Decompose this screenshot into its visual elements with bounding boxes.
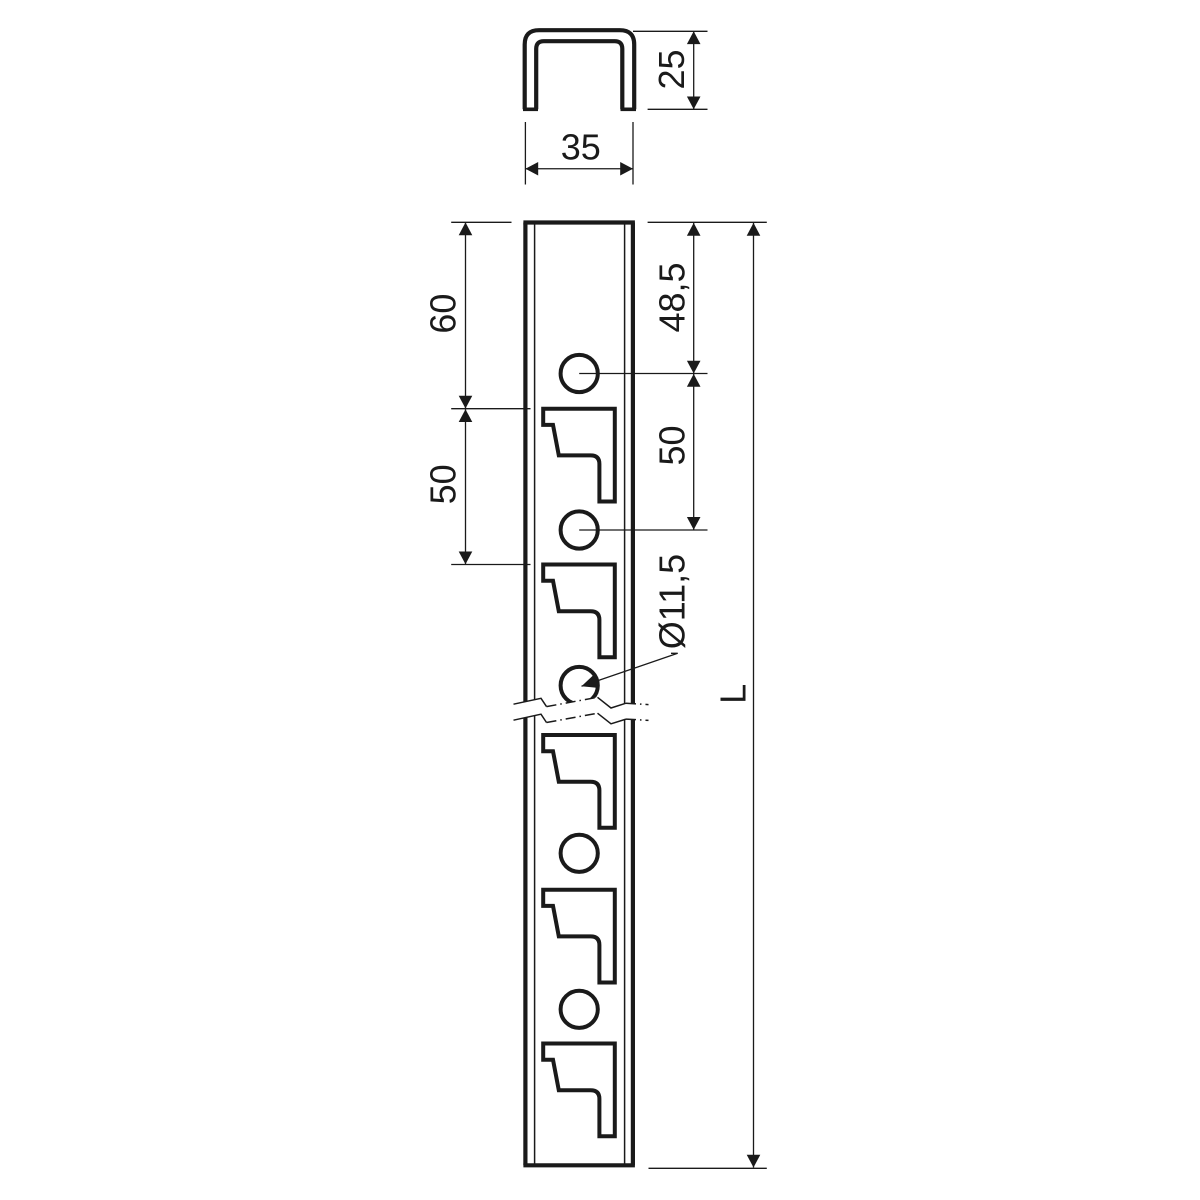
svg-text:50: 50: [422, 464, 463, 504]
svg-text:50: 50: [651, 425, 692, 465]
svg-text:35: 35: [561, 127, 601, 168]
svg-text:25: 25: [651, 49, 692, 89]
svg-text:Ø11,5: Ø11,5: [652, 554, 693, 649]
svg-text:48,5: 48,5: [651, 262, 692, 332]
svg-text:60: 60: [422, 294, 463, 334]
svg-text:L: L: [713, 684, 754, 704]
